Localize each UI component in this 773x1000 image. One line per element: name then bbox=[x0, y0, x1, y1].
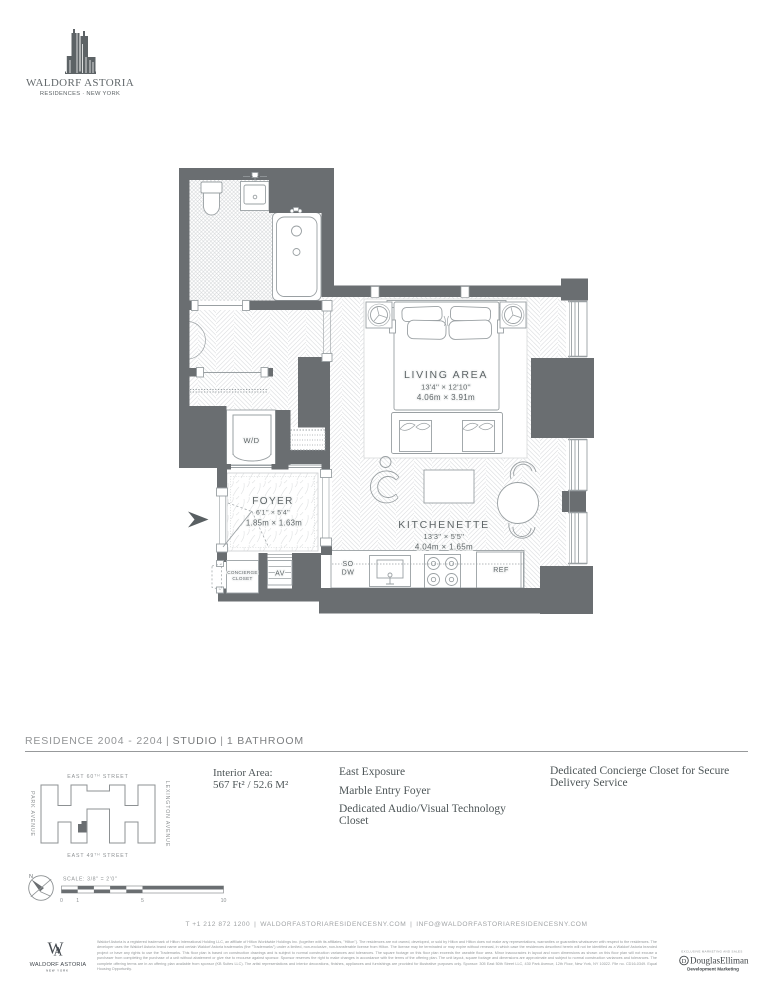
svg-text:1: 1 bbox=[76, 898, 79, 904]
svg-text:NEW YORK: NEW YORK bbox=[46, 968, 69, 972]
svg-text:CONCIERGE: CONCIERGE bbox=[227, 570, 258, 575]
svg-text:WALDORF ASTORIA: WALDORF ASTORIA bbox=[26, 77, 134, 89]
svg-text:LEXINGTON AVENUE: LEXINGTON AVENUE bbox=[164, 781, 170, 847]
svg-text:EAST 49TH STREET: EAST 49TH STREET bbox=[67, 853, 129, 860]
svg-text:CLOSET: CLOSET bbox=[232, 576, 252, 581]
svg-text:A: A bbox=[54, 945, 63, 959]
svg-text:SCALE: 3/8" = 2'0": SCALE: 3/8" = 2'0" bbox=[63, 877, 117, 883]
svg-text:6'1'' × 5'4'': 6'1'' × 5'4'' bbox=[256, 510, 290, 517]
svg-text:WALDORF ASTORIA: WALDORF ASTORIA bbox=[30, 962, 87, 968]
svg-text:LIVING AREA: LIVING AREA bbox=[404, 369, 488, 381]
svg-text:1.85m × 1.63m: 1.85m × 1.63m bbox=[246, 519, 302, 528]
svg-text:4.04m × 1.65m: 4.04m × 1.65m bbox=[415, 543, 473, 552]
svg-text:13'4'' × 12'10'': 13'4'' × 12'10'' bbox=[421, 383, 471, 392]
svg-text:KITCHENETTE: KITCHENETTE bbox=[398, 519, 490, 531]
svg-text:EAST 60TH STREET: EAST 60TH STREET bbox=[67, 774, 129, 781]
svg-text:N: N bbox=[29, 874, 33, 880]
svg-text:13'3'' × 5'5'': 13'3'' × 5'5'' bbox=[424, 532, 465, 541]
svg-text:4.06m × 3.91m: 4.06m × 3.91m bbox=[417, 393, 475, 402]
svg-text:10: 10 bbox=[221, 898, 227, 904]
svg-text:PARK AVENUE: PARK AVENUE bbox=[29, 791, 35, 837]
svg-text:RESIDENCES · NEW YORK: RESIDENCES · NEW YORK bbox=[40, 91, 120, 97]
svg-text:Development Marketing: Development Marketing bbox=[687, 967, 739, 972]
svg-text:DW: DW bbox=[342, 570, 355, 577]
svg-text:W/D: W/D bbox=[243, 436, 259, 445]
svg-text:REF: REF bbox=[493, 567, 509, 574]
svg-text:D: D bbox=[682, 958, 687, 965]
svg-text:AV: AV bbox=[275, 571, 285, 578]
svg-text:EXCLUSIVE MARKETING AND SALES: EXCLUSIVE MARKETING AND SALES bbox=[681, 950, 742, 954]
svg-text:0: 0 bbox=[60, 898, 63, 904]
svg-text:DouglasElliman: DouglasElliman bbox=[690, 956, 749, 966]
svg-text:5: 5 bbox=[141, 898, 144, 904]
svg-text:FOYER: FOYER bbox=[252, 496, 293, 507]
svg-text:SO: SO bbox=[342, 561, 353, 568]
